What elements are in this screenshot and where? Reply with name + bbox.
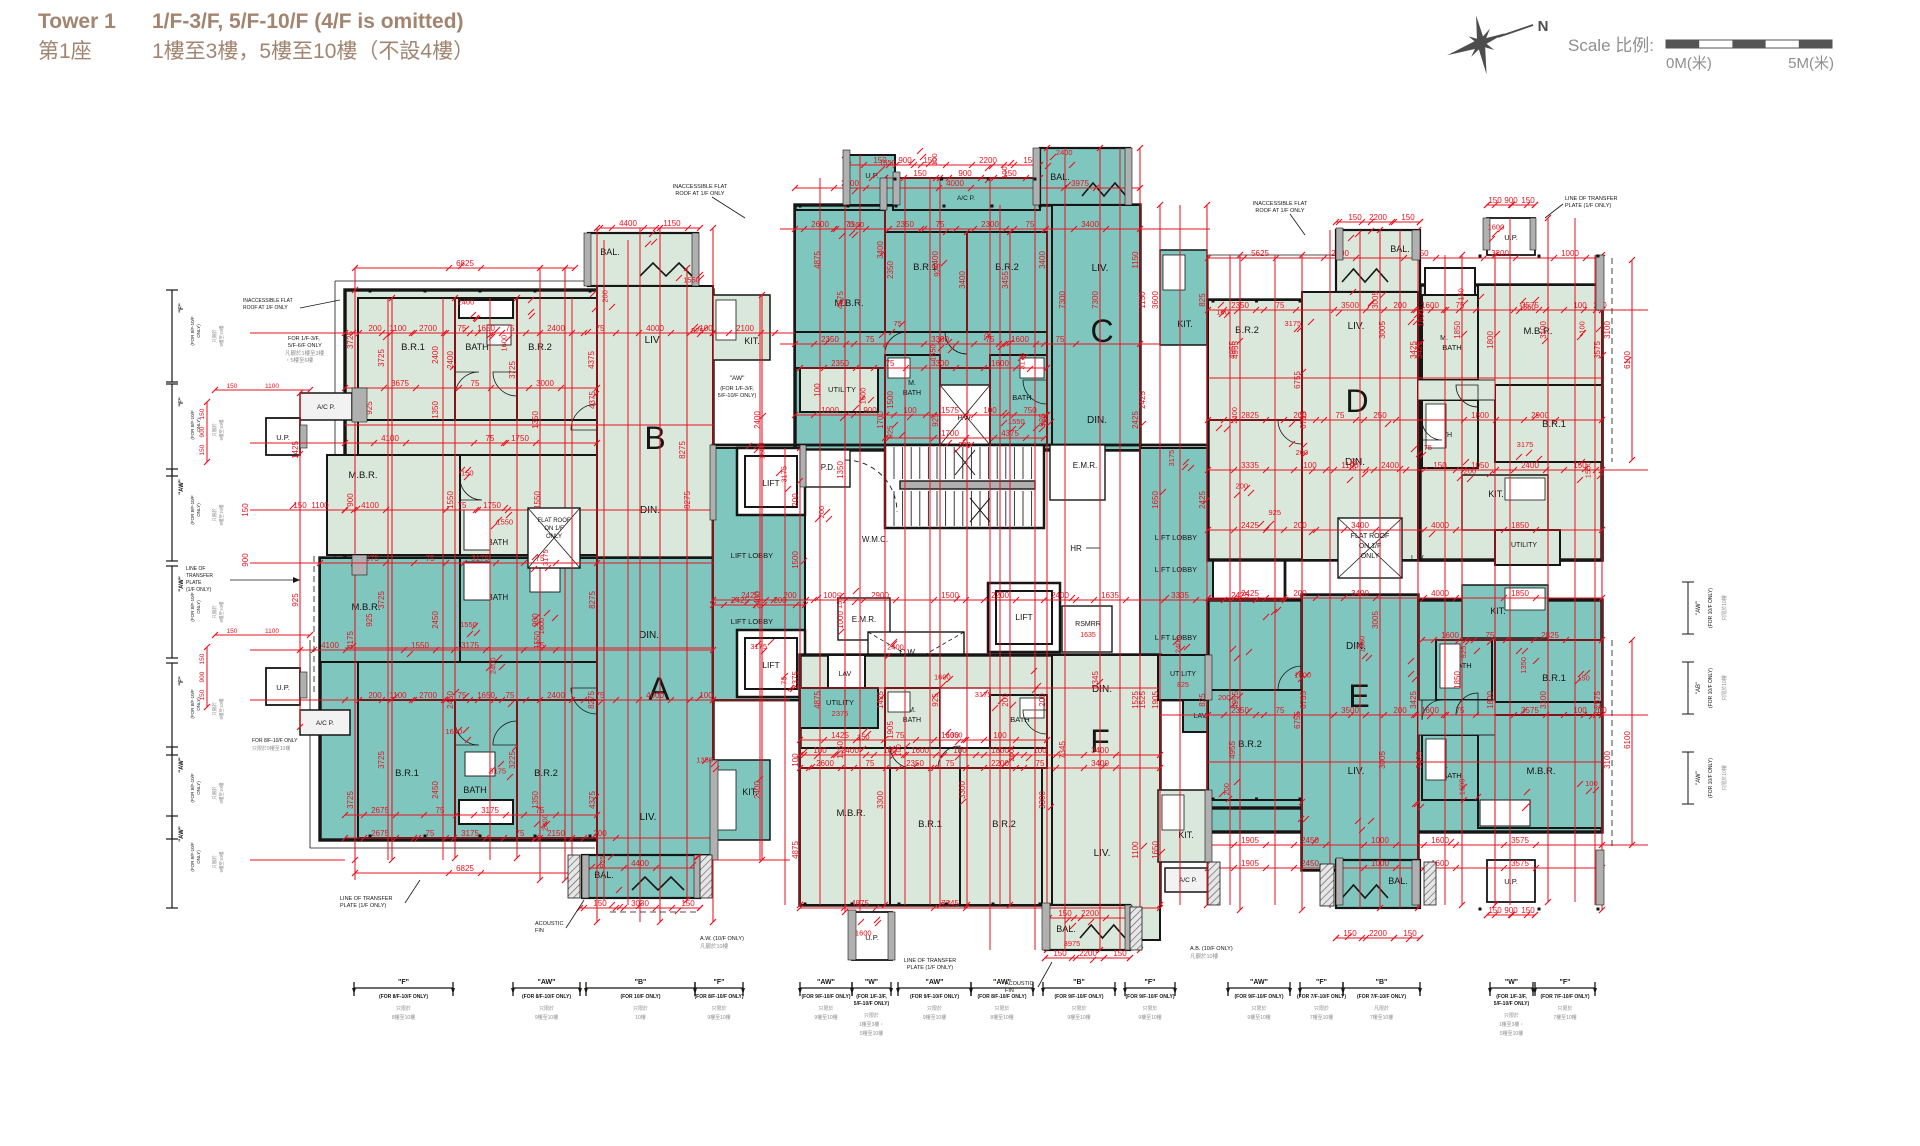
svg-text:3455: 3455 [1001,271,1010,289]
svg-text:4000: 4000 [646,324,664,333]
svg-text:8275: 8275 [587,691,596,709]
svg-text:"AW": "AW" [817,979,835,986]
svg-text:100: 100 [894,744,903,757]
svg-text:N: N [1538,18,1549,35]
svg-text:ACOUSTIC: ACOUSTIC [535,921,563,927]
svg-text:2400: 2400 [753,781,762,799]
svg-text:(FOR 8/F-10/F: (FOR 8/F-10/F [190,495,195,525]
svg-text:BATH: BATH [903,390,921,397]
svg-text:2400: 2400 [1521,461,1539,470]
svg-text:(FOR 8/F-10/F: (FOR 8/F-10/F [190,689,195,719]
svg-text:1350: 1350 [836,741,845,759]
svg-text:(FOR 8/F-10/F ONLY): (FOR 8/F-10/F ONLY) [379,994,428,1000]
svg-text:2400: 2400 [431,346,440,364]
svg-text:只限於: 只限於 [211,329,218,343]
svg-text:0M(米): 0M(米) [1666,55,1712,72]
svg-text:3175: 3175 [975,690,992,699]
svg-text:1550: 1550 [1008,417,1025,426]
svg-text:LIFT LOBBY: LIFT LOBBY [731,551,773,560]
svg-text:"AW": "AW" [730,375,746,382]
svg-text:3175: 3175 [541,549,550,566]
svg-text:LIFT LOBBY: LIFT LOBBY [1155,533,1197,542]
svg-text:1750: 1750 [483,501,501,510]
svg-text:BATH: BATH [1012,393,1031,402]
svg-text:75: 75 [1336,411,1345,420]
svg-text:2400: 2400 [547,324,565,333]
svg-text:100: 100 [813,383,822,397]
svg-text:8樓至10樓: 8樓至10樓 [218,504,225,526]
svg-text:2400: 2400 [1051,591,1069,600]
svg-text:1650: 1650 [1151,491,1160,509]
svg-text:FOR 8/F-10/F ONLY: FOR 8/F-10/F ONLY [252,738,298,744]
svg-text:3335: 3335 [1241,461,1259,470]
svg-text:2675: 2675 [371,806,389,815]
svg-text:100: 100 [1000,166,1009,179]
svg-text:ROOF AT 1/F ONLY: ROOF AT 1/F ONLY [243,305,288,311]
svg-text:2400: 2400 [887,643,904,652]
svg-text:1550: 1550 [928,344,937,361]
svg-text:LINE OF TRANSFER: LINE OF TRANSFER [340,896,392,902]
svg-text:4875: 4875 [791,841,800,859]
svg-text:1600: 1600 [859,388,868,405]
svg-text:A/C P.: A/C P. [316,720,334,727]
svg-text:150: 150 [199,653,206,664]
svg-text:9樓至10樓: 9樓至10樓 [535,1014,558,1021]
svg-text:E.M.R.: E.M.R. [852,615,876,624]
svg-text:7樓至10樓: 7樓至10樓 [1370,1014,1393,1021]
svg-text:4375: 4375 [587,351,596,369]
svg-text:只限於: 只限於 [396,1005,411,1012]
svg-text:B.R.2: B.R.2 [1235,325,1259,336]
svg-text:3175: 3175 [1285,319,1302,328]
svg-text:150: 150 [199,444,206,455]
svg-text:925: 925 [885,426,894,439]
svg-text:9樓至10樓: 9樓至10樓 [814,1014,837,1021]
svg-text:ON 1/F: ON 1/F [544,526,564,532]
svg-text:M.: M. [908,380,916,387]
svg-text:2825: 2825 [1541,631,1559,640]
svg-text:4175: 4175 [346,631,355,649]
svg-text:2100: 2100 [736,324,754,333]
svg-text:1750: 1750 [511,434,529,443]
svg-text:只限於: 只限於 [711,1005,726,1012]
svg-text:7樓至10樓: 7樓至10樓 [1310,1014,1333,1021]
svg-text:KIT.: KIT. [1178,830,1194,840]
svg-text:3500: 3500 [1341,706,1359,715]
svg-text:1000: 1000 [1561,249,1579,258]
svg-text:7345: 7345 [1091,671,1100,689]
svg-text:900: 900 [199,671,206,682]
svg-text:8樓至10樓: 8樓至10樓 [218,325,225,347]
svg-text:3175: 3175 [461,829,479,838]
svg-text:5/F-10/F ONLY): 5/F-10/F ONLY) [718,393,757,399]
svg-text:200: 200 [368,691,382,700]
svg-text:150: 150 [1401,213,1415,222]
svg-text:3175: 3175 [461,641,479,650]
svg-text:4100: 4100 [321,641,339,650]
svg-text:(FOR 9/F-10/F ONLY): (FOR 9/F-10/F ONLY) [1235,994,1284,1000]
svg-text:5/F-10/F ONLY): 5/F-10/F ONLY) [1494,1001,1530,1007]
svg-text:3575: 3575 [1593,341,1602,359]
svg-text:A/C P.: A/C P. [317,404,335,411]
svg-text:凡靚於10樓: 凡靚於10樓 [700,942,729,950]
svg-text:2400: 2400 [1381,461,1399,470]
svg-text:LIV.: LIV. [645,335,662,346]
svg-text:(FOR 10/F ONLY): (FOR 10/F ONLY) [1708,588,1714,628]
svg-text:2425: 2425 [1138,391,1147,409]
svg-text:6755: 6755 [1299,411,1308,429]
svg-text:只限於: 只限於 [818,1005,833,1012]
svg-text:75: 75 [983,331,991,340]
svg-text:1550: 1550 [533,491,542,509]
svg-text:只限於: 只限於 [211,605,218,619]
svg-text:6825: 6825 [456,259,474,268]
svg-text:3175: 3175 [750,642,767,651]
svg-text:只限於10樓: 只限於10樓 [1721,595,1728,621]
svg-text:1700: 1700 [876,411,885,429]
svg-text:75: 75 [1486,631,1495,640]
svg-text:3100: 3100 [1603,321,1612,339]
svg-text:2400: 2400 [488,657,497,674]
svg-text:"F": "F" [179,303,185,313]
svg-text:2425: 2425 [1198,491,1207,509]
svg-text:1000: 1000 [821,406,839,415]
svg-text:150: 150 [593,899,607,908]
svg-text:(FOR 10/F ONLY): (FOR 10/F ONLY) [620,994,660,1000]
svg-text:1350: 1350 [1357,636,1366,653]
svg-text:75: 75 [436,806,445,815]
svg-text:75: 75 [894,319,902,328]
svg-text:75: 75 [506,691,515,700]
svg-text:UTILITY: UTILITY [1170,671,1196,678]
svg-text:FLAT ROOF: FLAT ROOF [537,518,570,524]
svg-text:3425: 3425 [1409,691,1418,709]
svg-text:75: 75 [536,806,545,815]
svg-text:LIFT: LIFT [762,478,779,488]
svg-text:900: 900 [241,553,250,567]
svg-text:DIN.: DIN. [1087,415,1107,426]
svg-text:(FOR 8/F-10/F ONLY): (FOR 8/F-10/F ONLY) [522,994,571,1000]
svg-text:4955: 4955 [1228,741,1237,759]
svg-text:1550: 1550 [460,620,477,629]
svg-text:5/F-6/F ONLY: 5/F-6/F ONLY [288,343,322,349]
svg-text:2150: 2150 [547,829,565,838]
svg-text:只限於: 只限於 [864,1012,879,1019]
svg-text:3175: 3175 [1167,450,1176,467]
svg-text:1600: 1600 [537,618,546,635]
svg-text:925: 925 [1459,646,1468,659]
svg-text:LIFT: LIFT [762,660,779,670]
svg-text:150: 150 [241,503,250,517]
svg-text:200: 200 [1293,589,1307,598]
svg-text:"AW": "AW" [179,576,185,592]
svg-text:M.B.R.: M.B.R. [836,808,865,819]
svg-text:2450: 2450 [446,691,455,709]
svg-text:3425: 3425 [1415,341,1424,359]
svg-text:75: 75 [1276,706,1285,715]
svg-text:1905: 1905 [1241,859,1259,868]
svg-text:2350: 2350 [831,359,849,368]
svg-text:B.R.2: B.R.2 [534,768,558,779]
svg-text:3725: 3725 [508,361,517,379]
svg-text:ONLY): ONLY) [196,324,201,338]
svg-text:(FOR 8/F-10/F: (FOR 8/F-10/F [190,842,195,872]
svg-text:100: 100 [791,753,800,767]
svg-text:只限於: 只限於 [539,1005,554,1012]
svg-text:150: 150 [913,169,927,178]
svg-text:"F": "F" [398,979,409,986]
svg-text:(FOR 1/F-3/F,: (FOR 1/F-3/F, [1496,994,1527,1000]
svg-text:"F": "F" [179,676,185,686]
svg-text:RSMRR: RSMRR [1075,621,1101,628]
svg-text:4000: 4000 [1431,521,1449,530]
svg-text:LIV.: LIV. [640,812,657,823]
svg-text:(FOR 1/F-3/F,: (FOR 1/F-3/F, [856,994,887,1000]
svg-text:3600: 3600 [1151,291,1160,309]
svg-text:75: 75 [458,324,467,333]
svg-text:2450: 2450 [1301,859,1319,868]
svg-text:1600: 1600 [500,335,509,352]
svg-text:INACCESSIBLE FLAT: INACCESSIBLE FLAT [1253,201,1308,207]
svg-text:W.M.C.: W.M.C. [862,535,888,544]
svg-text:1850: 1850 [1453,671,1462,689]
svg-text:(FOR 8/F-10/F: (FOR 8/F-10/F [190,592,195,622]
svg-text:1500: 1500 [791,551,800,569]
svg-text:M.: M. [1440,335,1448,342]
svg-text:"F": "F" [714,979,725,986]
svg-text:7300: 7300 [1091,291,1100,309]
svg-text:4100: 4100 [381,434,399,443]
svg-text:6755: 6755 [1293,371,1302,389]
svg-text:150: 150 [1348,213,1362,222]
svg-text:200: 200 [958,440,971,449]
svg-text:只限於: 只限於 [1071,1005,1086,1012]
svg-text:1905: 1905 [1151,691,1160,709]
svg-text:75: 75 [426,554,435,563]
svg-text:2400: 2400 [547,691,565,700]
svg-text:5625: 5625 [1251,249,1269,258]
svg-text:LIV.: LIV. [1348,321,1365,332]
svg-text:1850: 1850 [1511,589,1529,598]
svg-text:"F": "F" [179,397,185,407]
svg-text:2200: 2200 [1369,929,1387,938]
svg-text:只限於: 只限於 [211,508,218,522]
svg-text:(FOR 8/F-10/F: (FOR 8/F-10/F [190,773,195,803]
svg-text:只限於10樓: 只限於10樓 [1721,765,1728,791]
svg-text:1600: 1600 [1421,301,1439,310]
svg-text:200: 200 [791,493,800,507]
svg-text:2675: 2675 [371,829,389,838]
svg-text:(FOR 9/F-10/F ONLY): (FOR 9/F-10/F ONLY) [1055,994,1104,1000]
svg-text:75: 75 [426,829,435,838]
svg-text:200: 200 [1464,466,1477,475]
svg-text:75: 75 [1424,443,1432,452]
svg-text:1600: 1600 [934,673,951,682]
svg-text:1150: 1150 [663,219,681,228]
svg-text:KIT.: KIT. [1490,606,1506,616]
svg-text:150: 150 [681,899,695,908]
svg-text:200: 200 [368,324,382,333]
svg-text:900: 900 [199,426,206,437]
svg-text:8樓至10樓: 8樓至10樓 [218,698,225,720]
svg-text:UTILITY: UTILITY [828,385,856,394]
svg-text:LIFT LOBBY: LIFT LOBBY [731,617,773,626]
svg-text:"AW": "AW" [538,979,556,986]
svg-text:1350: 1350 [431,401,440,419]
svg-text:1425: 1425 [876,691,885,709]
svg-text:7345: 7345 [1058,741,1067,759]
svg-text:1350: 1350 [946,731,963,740]
svg-text:1350: 1350 [531,411,540,429]
svg-text:LIFT: LIFT [1015,612,1032,622]
svg-text:(FOR 9/F-10/F ONLY): (FOR 9/F-10/F ONLY) [802,994,851,1000]
svg-text:3725: 3725 [377,349,386,367]
svg-text:2600: 2600 [816,759,834,768]
svg-text:只限於: 只限於 [211,855,218,869]
svg-text:"B": "B" [635,979,647,986]
svg-text:4375: 4375 [588,391,597,409]
svg-text:3300: 3300 [958,781,967,799]
svg-text:只限於: 只限於 [1251,1005,1266,1012]
svg-text:只限於: 只限於 [211,786,218,800]
svg-text:1600: 1600 [758,443,767,460]
svg-text:3400: 3400 [1081,220,1099,229]
svg-text:2350: 2350 [906,759,924,768]
svg-text:75: 75 [1036,759,1045,768]
svg-text:A/C P.: A/C P. [1179,877,1197,884]
svg-text:1905: 1905 [886,721,895,739]
svg-text:D: D [1345,383,1368,419]
svg-text:100: 100 [1303,461,1317,470]
svg-text:3100: 3100 [1603,751,1612,769]
svg-text:8275: 8275 [678,441,687,459]
svg-text:200: 200 [1038,693,1047,707]
svg-text:3300: 3300 [876,791,885,809]
svg-text:3005: 3005 [1371,291,1380,309]
svg-text:P.D.: P.D. [821,463,836,472]
svg-text:4100: 4100 [361,501,379,510]
svg-text:B.R.1: B.R.1 [395,768,419,779]
svg-text:925: 925 [365,613,374,627]
svg-text:B.R.2: B.R.2 [1238,739,1262,750]
svg-text:B.R.1: B.R.1 [1542,419,1566,430]
svg-text:P.W.: P.W. [958,413,973,422]
svg-text:3725: 3725 [377,751,386,769]
svg-text:"AW": "AW" [179,757,185,773]
svg-text:1600: 1600 [855,929,872,938]
svg-text:凡限於: 凡限於 [1374,1005,1389,1012]
svg-text:DIN.: DIN. [639,630,659,641]
svg-text:150: 150 [1488,906,1502,915]
svg-text:只限於: 只限於 [1504,1012,1519,1019]
svg-text:ONLY: ONLY [546,534,562,540]
svg-text:75: 75 [866,335,875,344]
svg-text:2900: 2900 [871,591,889,600]
svg-text:2400: 2400 [541,814,550,831]
svg-text:1350: 1350 [696,755,713,764]
svg-text:150: 150 [1113,949,1127,958]
svg-text:5M(米): 5M(米) [1788,55,1834,72]
svg-text:1800: 1800 [1471,411,1489,420]
svg-text:1600: 1600 [911,746,929,755]
svg-text:2425: 2425 [1131,411,1140,429]
svg-text:BATH: BATH [903,717,921,724]
svg-text:1600: 1600 [1421,706,1439,715]
svg-text:4000: 4000 [1431,589,1449,598]
svg-text:4000: 4000 [946,179,964,188]
svg-text:2200: 2200 [1081,909,1099,918]
svg-text:BAL.: BAL. [1388,876,1408,886]
svg-text:KIT.: KIT. [1488,489,1504,499]
svg-text:(FOR 8/F-10/F ONLY): (FOR 8/F-10/F ONLY) [978,994,1027,1000]
svg-text:"AW": "AW" [993,979,1011,986]
svg-text:只限於: 只限於 [211,423,218,437]
svg-text:150: 150 [1488,196,1502,205]
svg-text:2400: 2400 [1230,407,1239,424]
svg-text:3175: 3175 [1517,440,1534,449]
svg-text:1550: 1550 [879,158,896,167]
svg-text:"AW": "AW" [1250,979,1268,986]
svg-text:1635: 1635 [1080,632,1096,639]
svg-text:2450: 2450 [431,611,440,629]
svg-text:6100: 6100 [1623,731,1632,749]
svg-text:1350: 1350 [1519,657,1528,674]
svg-text:ONLY): ONLY) [196,781,201,795]
svg-text:LINE OF: LINE OF [186,566,205,572]
svg-text:150: 150 [199,408,206,419]
svg-text:凡靚於10樓: 凡靚於10樓 [1190,952,1219,960]
svg-text:100: 100 [1585,779,1598,788]
svg-text:1575: 1575 [941,406,959,415]
svg-text:1550: 1550 [1519,303,1536,312]
svg-text:10樓: 10樓 [635,1014,646,1021]
svg-text:1100: 1100 [265,628,279,635]
svg-text:1100: 1100 [265,383,279,390]
svg-text:3725: 3725 [346,791,355,809]
svg-text:75: 75 [866,759,875,768]
svg-text:第1座: 第1座 [38,40,92,63]
svg-text:KIT.: KIT. [744,336,760,346]
svg-text:150: 150 [1053,949,1067,958]
svg-text:1500: 1500 [886,391,895,409]
svg-text:100: 100 [930,153,939,166]
svg-text:3400: 3400 [958,271,967,289]
svg-text:100: 100 [953,746,967,755]
svg-text:900: 900 [346,493,355,507]
svg-text:PLATE (1/F ONLY): PLATE (1/F ONLY) [1565,203,1611,209]
svg-text:75: 75 [896,731,905,740]
svg-text:1550: 1550 [1584,461,1593,478]
svg-text:9樓至10樓: 9樓至10樓 [1067,1014,1090,1021]
svg-text:(FOR 10/F ONLY): (FOR 10/F ONLY) [1708,668,1714,708]
svg-text:1600: 1600 [1457,779,1466,796]
svg-text:75: 75 [886,359,895,368]
svg-text:3975: 3975 [1064,939,1081,948]
svg-text:凡靚於1樓至3樓: 凡靚於1樓至3樓 [285,349,325,357]
svg-text:B.R.1: B.R.1 [1542,673,1566,684]
svg-text:1550: 1550 [496,517,513,526]
svg-text:925: 925 [598,856,607,869]
svg-text:2350: 2350 [886,261,895,279]
svg-text:(FOR 9/F-10/F ONLY): (FOR 9/F-10/F ONLY) [1126,994,1175,1000]
svg-text:100: 100 [1216,307,1229,316]
svg-text:3005: 3005 [1378,751,1387,769]
svg-text:925: 925 [933,263,942,277]
svg-text:1000: 1000 [836,611,845,629]
svg-text:75: 75 [780,676,789,684]
svg-text:2400: 2400 [458,298,475,307]
svg-text:3005: 3005 [1371,611,1380,629]
